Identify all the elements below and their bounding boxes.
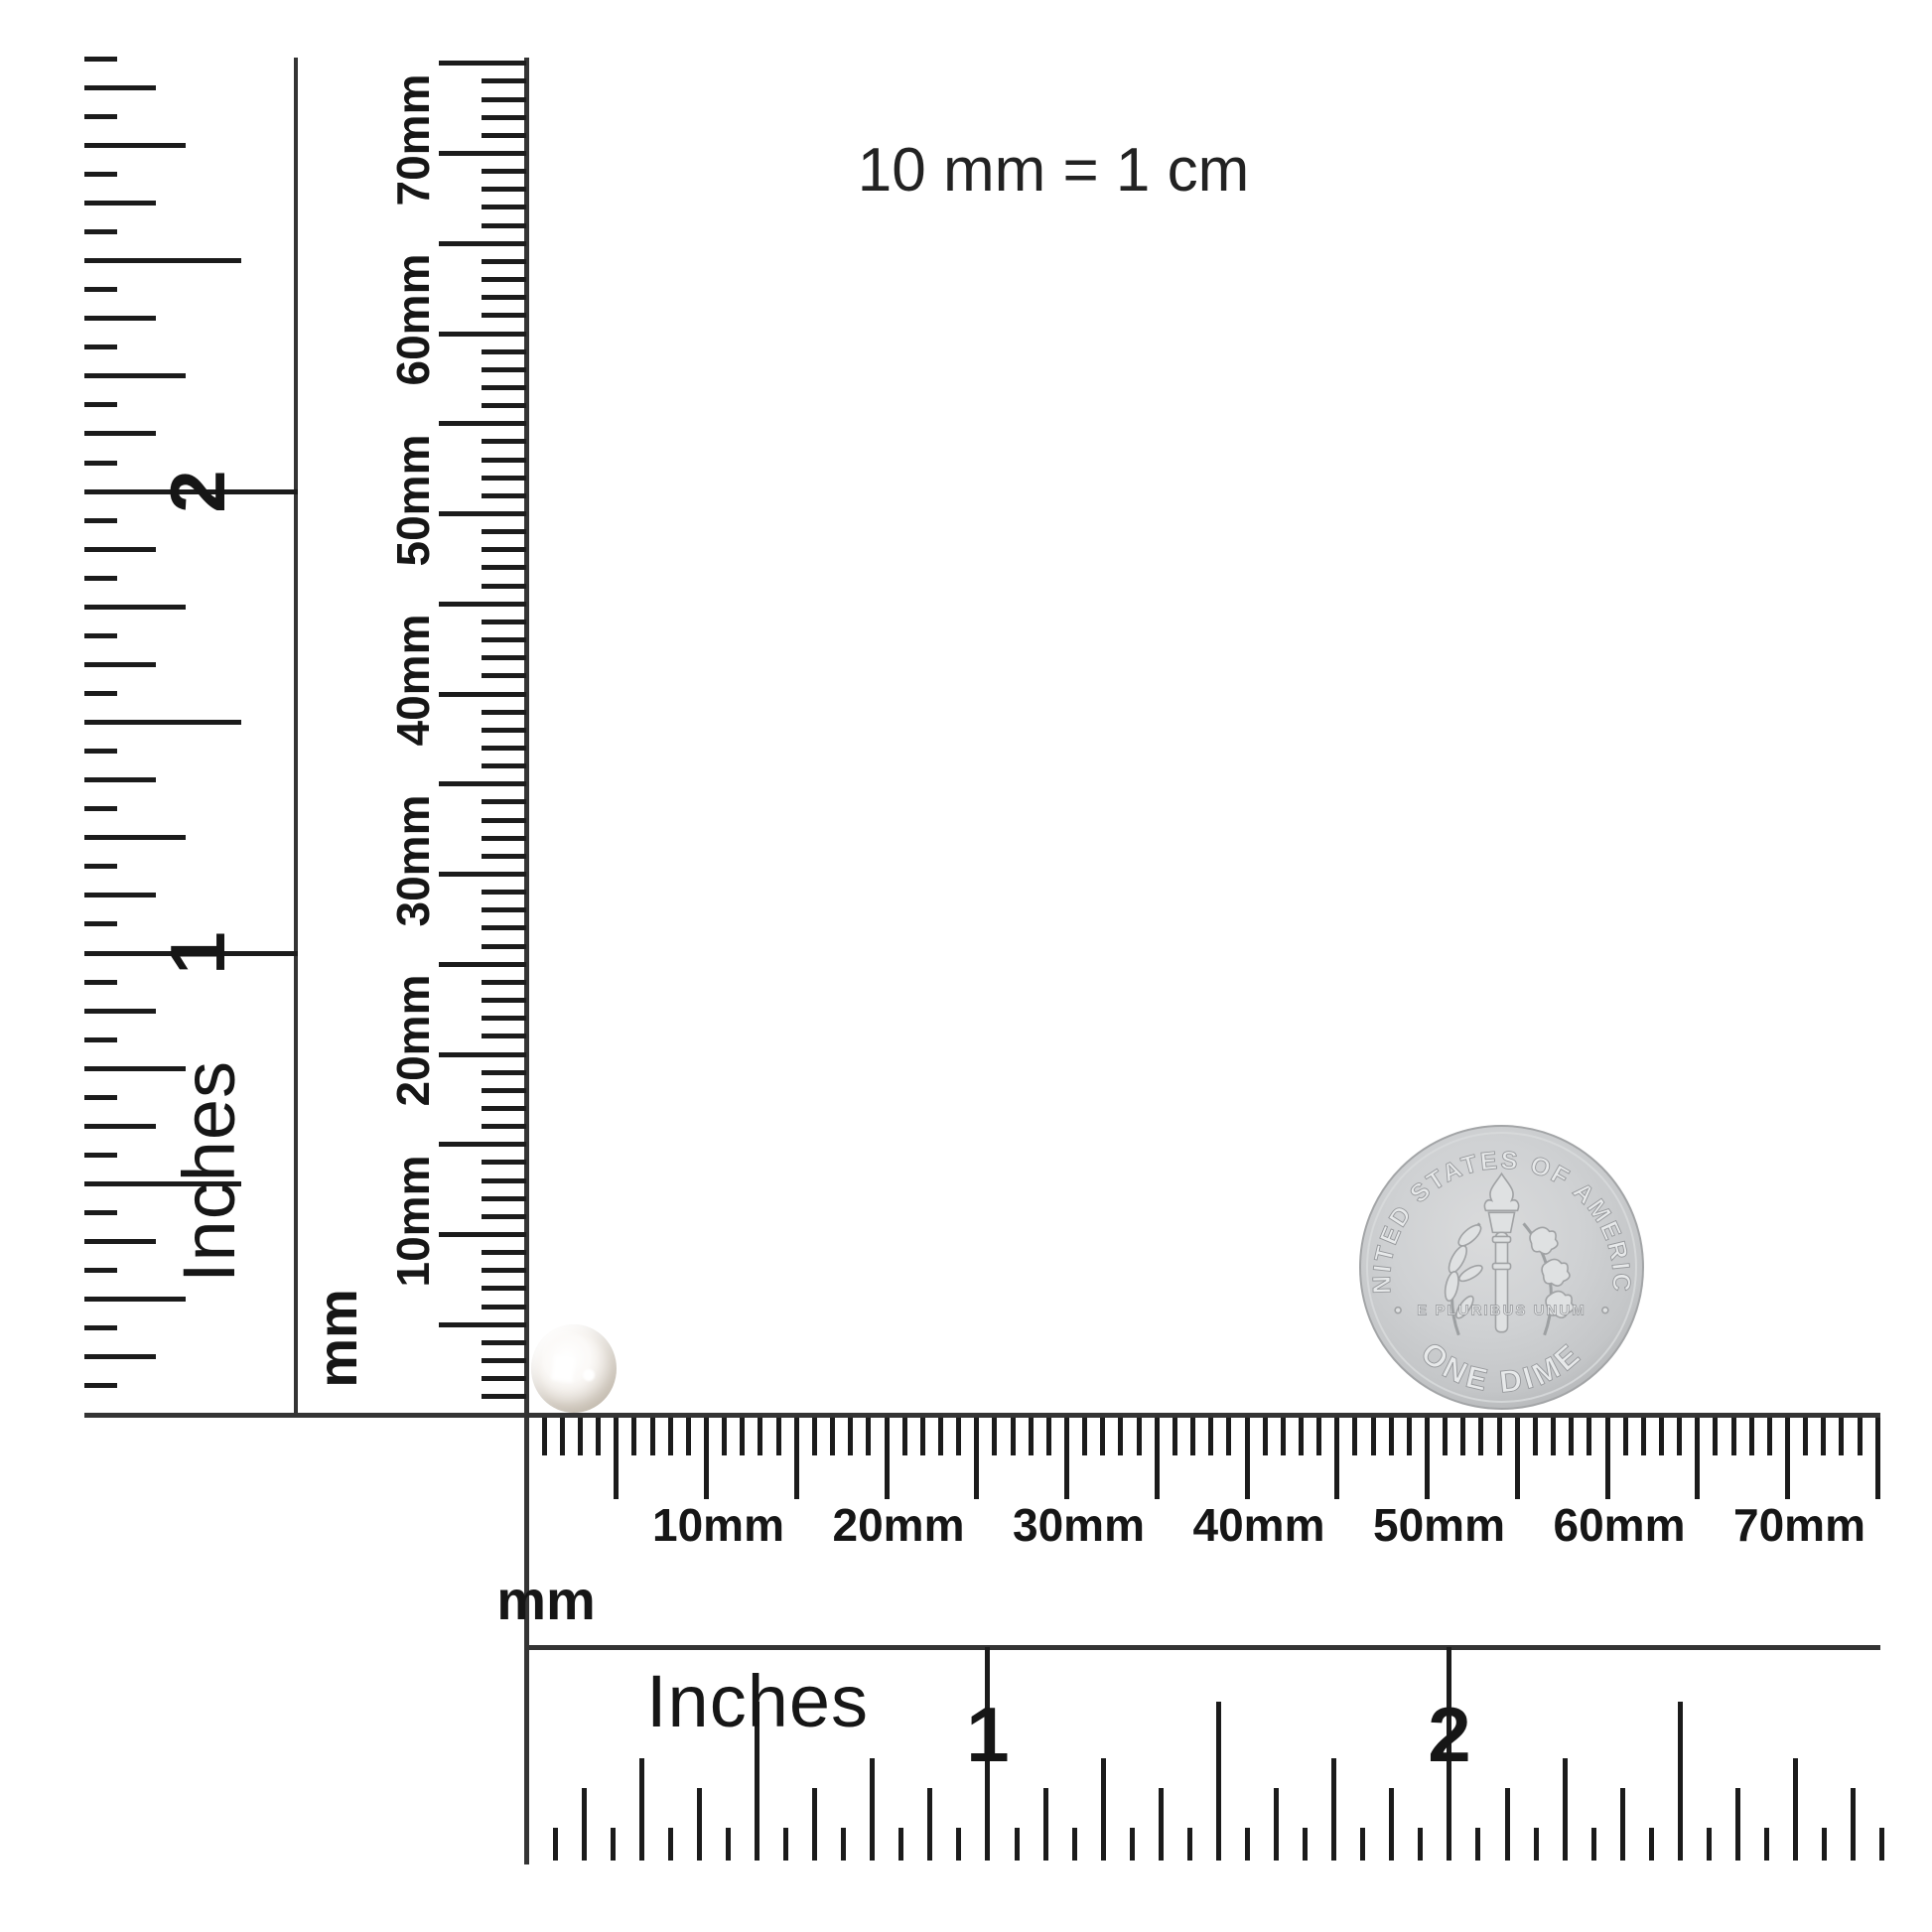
mm-tick <box>482 836 526 841</box>
mm-tick-label: 50mm <box>1373 1502 1505 1548</box>
mm-tick <box>482 728 526 733</box>
mm-tick <box>439 1232 526 1237</box>
mm-tick <box>650 1418 655 1455</box>
inch-tick <box>1245 1828 1250 1861</box>
mm-tick <box>885 1418 890 1499</box>
inch-tick <box>84 576 117 581</box>
mm-tick <box>1460 1418 1465 1455</box>
mm-tick <box>439 1052 526 1057</box>
inch-tick <box>1475 1828 1480 1861</box>
mm-tick <box>439 332 526 337</box>
mm-tick-label: 30mm <box>1013 1502 1145 1548</box>
mm-tick-label: 40mm <box>1193 1502 1325 1548</box>
inch-tick <box>84 57 117 62</box>
inch-tick <box>812 1788 817 1861</box>
inch-tick <box>1331 1758 1336 1861</box>
mm-tick <box>812 1418 817 1455</box>
inch-tick <box>639 1758 644 1861</box>
inch-tick <box>1563 1758 1568 1861</box>
mm-tick <box>482 403 526 408</box>
bottom-inch-ruler-unit-label: Inches <box>646 1665 869 1738</box>
inch-tick <box>84 547 156 552</box>
mm-tick <box>1316 1418 1321 1455</box>
mm-tick <box>482 1088 526 1093</box>
mm-tick <box>1478 1418 1483 1455</box>
mm-tick <box>482 259 526 264</box>
mm-tick <box>1731 1418 1736 1455</box>
pearl-image <box>531 1324 617 1413</box>
inch-tick <box>1505 1788 1510 1861</box>
mm-tick <box>1425 1418 1430 1499</box>
mm-tick <box>482 223 526 228</box>
mm-tick <box>439 602 526 607</box>
mm-tick <box>439 421 526 426</box>
inch-tick <box>1043 1788 1048 1861</box>
mm-tick <box>866 1418 871 1455</box>
mm-tick <box>1100 1418 1105 1455</box>
mm-tick <box>686 1418 691 1455</box>
mm-tick <box>482 115 526 120</box>
inch-tick <box>1764 1828 1769 1861</box>
mm-tick <box>1641 1418 1646 1455</box>
mm-tick <box>482 980 526 985</box>
mm-tick <box>631 1418 636 1455</box>
coin-left-dot <box>1395 1308 1401 1313</box>
inch-tick <box>84 1210 117 1215</box>
mm-tick <box>1821 1418 1826 1455</box>
inch-tick <box>1360 1828 1365 1861</box>
mm-tick <box>560 1418 565 1455</box>
inch-tick <box>84 316 156 321</box>
inch-tick <box>84 461 117 466</box>
mm-tick-label: 60mm <box>390 254 436 386</box>
mm-tick <box>482 944 526 949</box>
mm-tick <box>956 1418 961 1455</box>
mm-tick <box>482 1106 526 1111</box>
mm-tick <box>482 1376 526 1381</box>
mm-tick <box>758 1418 762 1455</box>
mm-tick <box>482 439 526 444</box>
mm-tick <box>974 1418 979 1499</box>
mm-tick <box>482 367 526 372</box>
mm-tick <box>1587 1418 1591 1455</box>
mm-tick <box>1281 1418 1286 1455</box>
mm-tick <box>542 1418 547 1455</box>
mm-tick <box>482 655 526 660</box>
inch-tick <box>84 1009 156 1014</box>
inch-tick <box>697 1788 702 1861</box>
mm-tick <box>482 349 526 354</box>
mm-tick <box>439 151 526 156</box>
inch-tick <box>84 229 117 234</box>
mm-tick-label: 50mm <box>390 434 436 566</box>
mm-tick-label: 10mm <box>390 1155 436 1287</box>
inch-tick <box>1879 1828 1884 1861</box>
mm-tick <box>1515 1418 1520 1499</box>
inch-tick <box>1591 1828 1596 1861</box>
mm-tick <box>482 673 526 678</box>
mm-tick <box>1858 1418 1863 1455</box>
inch-tick <box>84 806 117 811</box>
mm-tick-label: 70mm <box>1733 1502 1865 1548</box>
mm-tick <box>482 1305 526 1310</box>
mm-tick <box>1334 1418 1339 1499</box>
inch-tick <box>927 1788 932 1861</box>
inch-tick <box>783 1828 788 1861</box>
inch-tick <box>870 1758 875 1861</box>
inch-tick <box>84 720 241 725</box>
mm-tick <box>482 547 526 552</box>
inch-tick <box>1389 1788 1394 1861</box>
mm-tick <box>1605 1418 1610 1499</box>
inch-tick <box>84 864 117 869</box>
mm-tick <box>1569 1418 1574 1455</box>
inch-tick <box>84 431 156 436</box>
mm-tick <box>992 1418 997 1455</box>
inch-tick <box>1851 1788 1856 1861</box>
inch-tick <box>84 1354 156 1359</box>
mm-tick <box>482 1178 526 1183</box>
mm-tick <box>482 1214 526 1219</box>
mm-tick <box>1497 1418 1502 1455</box>
mm-tick <box>668 1418 673 1455</box>
mm-tick <box>439 241 526 246</box>
mm-tick <box>1137 1418 1142 1455</box>
inch-tick <box>1418 1828 1423 1861</box>
mm-tick <box>482 1358 526 1363</box>
mm-tick-label: 30mm <box>390 794 436 926</box>
mm-tick <box>1263 1418 1268 1455</box>
mm-tick <box>482 205 526 209</box>
mm-tick <box>482 169 526 174</box>
inch-tick <box>84 373 186 378</box>
mm-tick <box>920 1418 925 1455</box>
mm-tick <box>1767 1418 1772 1455</box>
inch-tick <box>956 1828 961 1861</box>
inch-tick <box>1159 1788 1164 1861</box>
mm-tick <box>439 511 526 516</box>
inch-tick <box>84 114 117 119</box>
inch-tick <box>84 605 186 610</box>
inch-tick <box>84 287 117 292</box>
inch-tick <box>1735 1788 1740 1861</box>
inch-numeral: 1 <box>159 931 236 974</box>
mm-tick <box>1875 1418 1880 1499</box>
mm-tick <box>482 710 526 715</box>
inch-tick <box>84 1153 117 1158</box>
mm-tick <box>482 998 526 1003</box>
mm-tick <box>439 1142 526 1147</box>
mm-tick <box>482 818 526 823</box>
mm-tick <box>830 1418 835 1455</box>
inch-tick <box>84 633 117 638</box>
mm-tick <box>482 637 526 642</box>
inch-tick <box>84 258 241 263</box>
mm-tick-label: 20mm <box>390 975 436 1107</box>
mm-tick <box>902 1418 907 1455</box>
mm-tick <box>482 187 526 192</box>
mm-tick <box>1118 1418 1123 1455</box>
size-reference-image: 10 mm = 1 cm 12 10mm20mm30mm40mm50mm60mm… <box>0 0 1932 1932</box>
mm-tick <box>482 907 526 912</box>
mm-tick <box>1352 1418 1357 1455</box>
mm-tick <box>482 1268 526 1273</box>
mm-tick <box>1046 1418 1051 1455</box>
mm-tick-label: 60mm <box>1554 1502 1686 1548</box>
mm-tick <box>482 1394 526 1399</box>
mm-tick <box>482 584 526 589</box>
mm-tick <box>596 1418 601 1455</box>
inch-tick <box>84 172 117 177</box>
inch-tick <box>84 143 186 148</box>
mm-tick <box>439 1322 526 1327</box>
mm-tick <box>1695 1418 1700 1499</box>
inch-tick <box>84 893 156 897</box>
inch-tick <box>84 980 117 985</box>
mm-tick <box>482 1196 526 1201</box>
inch-tick <box>1216 1702 1221 1861</box>
mm-tick <box>482 313 526 318</box>
mm-tick <box>482 854 526 859</box>
mm-tick <box>482 1070 526 1075</box>
inch-tick <box>84 921 117 926</box>
inch-numeral: 2 <box>1428 1696 1470 1773</box>
mm-tick-label: 20mm <box>833 1502 965 1548</box>
mm-tick <box>439 962 526 967</box>
mm-tick <box>482 476 526 481</box>
mm-tick <box>1190 1418 1195 1455</box>
inch-tick <box>1707 1828 1712 1861</box>
inch-tick <box>1678 1702 1683 1861</box>
mm-tick <box>1803 1418 1808 1455</box>
inch-tick <box>1072 1828 1077 1861</box>
inch-tick <box>84 662 156 667</box>
inch-tick <box>1101 1758 1106 1861</box>
mm-tick <box>482 925 526 930</box>
mm-tick <box>439 692 526 697</box>
mm-tick <box>482 890 526 895</box>
bottom-inch-ruler-top-line <box>526 1645 1880 1650</box>
mm-tick <box>1082 1418 1087 1455</box>
mm-tick <box>482 493 526 498</box>
mm-tick <box>439 872 526 877</box>
mm-tick <box>439 61 526 66</box>
inch-tick <box>1534 1828 1539 1861</box>
mm-tick <box>482 746 526 751</box>
pearl-highlight-dot <box>583 1369 595 1381</box>
mm-tick <box>1785 1418 1790 1499</box>
inch-tick <box>553 1828 558 1861</box>
dime-coin-image: UNITED STATES OF AMERICA ONE DIME E PLUR… <box>1358 1124 1645 1411</box>
mm-tick <box>482 799 526 804</box>
mm-tick <box>482 385 526 390</box>
mm-tick <box>722 1418 727 1455</box>
mm-tick <box>482 620 526 624</box>
inch-tick <box>84 1239 156 1244</box>
inch-numeral: 2 <box>159 470 236 512</box>
mm-tick <box>578 1418 583 1455</box>
mm-tick <box>1155 1418 1160 1499</box>
mm-tick <box>1245 1418 1250 1499</box>
mm-tick <box>482 295 526 300</box>
mm-tick <box>482 1160 526 1165</box>
mm-tick <box>938 1418 943 1455</box>
mm-tick <box>482 1034 526 1038</box>
inch-tick <box>84 1268 117 1273</box>
inch-tick <box>1620 1788 1625 1861</box>
scale-note-text: 10 mm = 1 cm <box>858 140 1250 202</box>
inch-tick <box>84 345 117 349</box>
inch-tick <box>841 1828 846 1861</box>
mm-tick <box>1371 1418 1376 1455</box>
mm-tick <box>1749 1418 1754 1455</box>
dime-coin-face: UNITED STATES OF AMERICA ONE DIME E PLUR… <box>1358 1124 1643 1409</box>
mm-tick <box>776 1418 781 1455</box>
inch-tick <box>1793 1758 1798 1861</box>
mm-tick <box>482 78 526 83</box>
inch-numeral: 1 <box>966 1696 1009 1773</box>
inch-tick <box>1649 1828 1654 1861</box>
inch-tick <box>898 1828 903 1861</box>
mm-tick <box>482 529 526 534</box>
mm-tick <box>1208 1418 1213 1455</box>
inch-tick <box>1303 1828 1308 1861</box>
inch-tick <box>84 201 156 206</box>
mm-tick <box>1029 1418 1034 1455</box>
mm-tick <box>482 1340 526 1345</box>
inch-tick <box>1187 1828 1192 1861</box>
coin-motto-text: E PLURIBUS UNUM <box>1417 1303 1587 1319</box>
inch-tick <box>726 1828 731 1861</box>
inch-tick <box>582 1788 587 1861</box>
inch-tick <box>1822 1828 1827 1861</box>
mm-tick <box>614 1418 619 1499</box>
mm-tick <box>1299 1418 1304 1455</box>
mm-tick <box>482 1124 526 1129</box>
mm-tick <box>482 763 526 768</box>
mm-tick <box>1533 1418 1538 1455</box>
mm-tick <box>482 133 526 138</box>
mm-tick <box>704 1418 709 1499</box>
inch-tick <box>84 835 186 840</box>
mm-tick-label: 10mm <box>652 1502 784 1548</box>
inch-tick <box>84 749 117 754</box>
pearl-highlight <box>552 1355 576 1383</box>
corner-horizontal-line <box>84 1413 1880 1418</box>
left-inch-ruler-baseline <box>294 58 298 1415</box>
inch-tick <box>84 1297 186 1302</box>
inch-tick <box>84 1383 117 1388</box>
mm-tick-label: 40mm <box>390 615 436 747</box>
inch-tick <box>84 1095 117 1100</box>
mm-tick <box>482 1016 526 1021</box>
inch-tick <box>84 691 117 696</box>
mm-tick <box>439 781 526 786</box>
left-mm-ruler-unit-label: mm <box>310 1289 365 1388</box>
mm-tick <box>1389 1418 1394 1455</box>
mm-tick <box>1623 1418 1628 1455</box>
mm-tick <box>1407 1418 1412 1455</box>
mm-tick <box>794 1418 799 1499</box>
mm-tick <box>482 565 526 570</box>
mm-tick <box>482 1286 526 1291</box>
mm-tick <box>1677 1418 1682 1455</box>
mm-tick <box>482 277 526 282</box>
mm-tick <box>482 97 526 102</box>
mm-tick <box>1659 1418 1664 1455</box>
coin-right-dot <box>1602 1308 1608 1313</box>
inch-tick <box>611 1828 616 1861</box>
inch-tick <box>1130 1828 1135 1861</box>
inch-tick <box>84 1037 117 1042</box>
mm-tick <box>482 458 526 463</box>
mm-tick-label: 70mm <box>390 73 436 206</box>
mm-tick <box>1551 1418 1556 1455</box>
mm-tick <box>482 1250 526 1255</box>
inch-tick <box>84 777 156 782</box>
inch-tick <box>1274 1788 1279 1861</box>
inch-tick <box>84 85 156 90</box>
mm-tick <box>1011 1418 1016 1455</box>
inch-tick <box>84 402 117 407</box>
mm-tick <box>1839 1418 1844 1455</box>
inch-tick <box>84 1325 117 1330</box>
inch-tick <box>84 518 117 523</box>
mm-tick <box>1713 1418 1718 1455</box>
inch-tick <box>668 1828 673 1861</box>
mm-tick <box>1173 1418 1177 1455</box>
mm-tick <box>1226 1418 1231 1455</box>
mm-tick <box>1443 1418 1448 1455</box>
mm-tick <box>1064 1418 1069 1499</box>
bottom-mm-ruler-unit-label: mm <box>496 1573 596 1628</box>
inch-tick <box>84 1124 156 1129</box>
left-inch-ruler-unit-label: Inches <box>173 1060 246 1283</box>
mm-tick <box>848 1418 853 1455</box>
inch-tick <box>1015 1828 1020 1861</box>
mm-tick <box>740 1418 745 1455</box>
